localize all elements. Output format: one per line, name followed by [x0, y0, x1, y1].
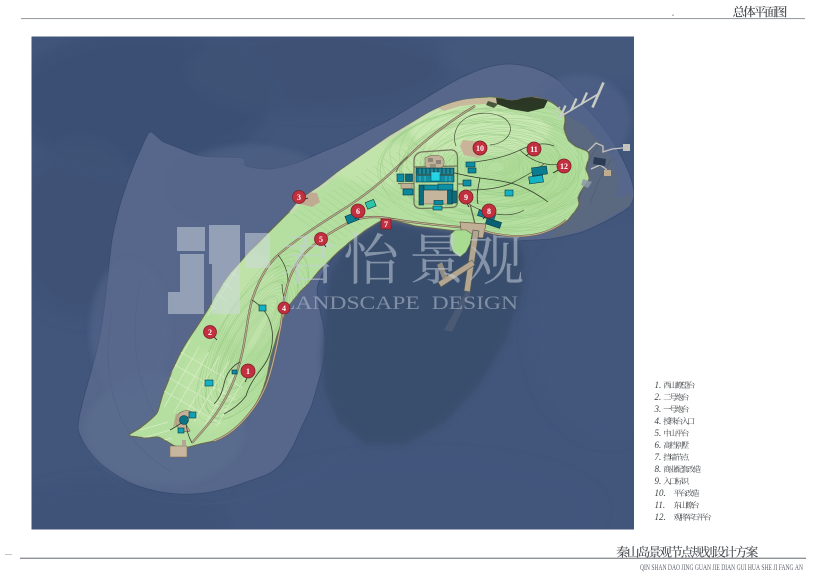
svg-text:9.: 9.	[655, 476, 662, 486]
svg-text:8: 8	[487, 207, 491, 216]
svg-text:2.: 2.	[655, 392, 662, 402]
svg-text:6.: 6.	[655, 440, 662, 450]
svg-text:11.: 11.	[655, 500, 666, 510]
svg-text:7: 7	[384, 220, 388, 229]
svg-text:4.: 4.	[655, 416, 662, 426]
svg-text:4: 4	[282, 304, 286, 313]
svg-text:10: 10	[476, 144, 484, 153]
svg-text:2: 2	[208, 328, 212, 337]
svg-text:1: 1	[246, 367, 250, 376]
svg-text:QIN SHAN DAO JING GUAN JIE DIA: QIN SHAN DAO JING GUAN JIE DIAN GUI HUA …	[640, 562, 804, 572]
svg-text:3.: 3.	[654, 404, 662, 414]
svg-text:11: 11	[530, 145, 538, 154]
svg-text:7.: 7.	[655, 452, 662, 462]
svg-text:9: 9	[464, 193, 468, 202]
svg-text:5: 5	[319, 235, 323, 244]
svg-text:12.: 12.	[655, 512, 666, 522]
svg-text:LANDSCAPE DESIGN: LANDSCAPE DESIGN	[281, 293, 518, 314]
svg-text:1.: 1.	[655, 380, 662, 390]
svg-text:3: 3	[297, 193, 301, 202]
svg-text:6: 6	[356, 207, 360, 216]
svg-text:5.: 5.	[655, 428, 662, 438]
svg-text:10.: 10.	[655, 488, 666, 498]
svg-text:8.: 8.	[655, 464, 662, 474]
svg-text:12: 12	[560, 162, 568, 171]
